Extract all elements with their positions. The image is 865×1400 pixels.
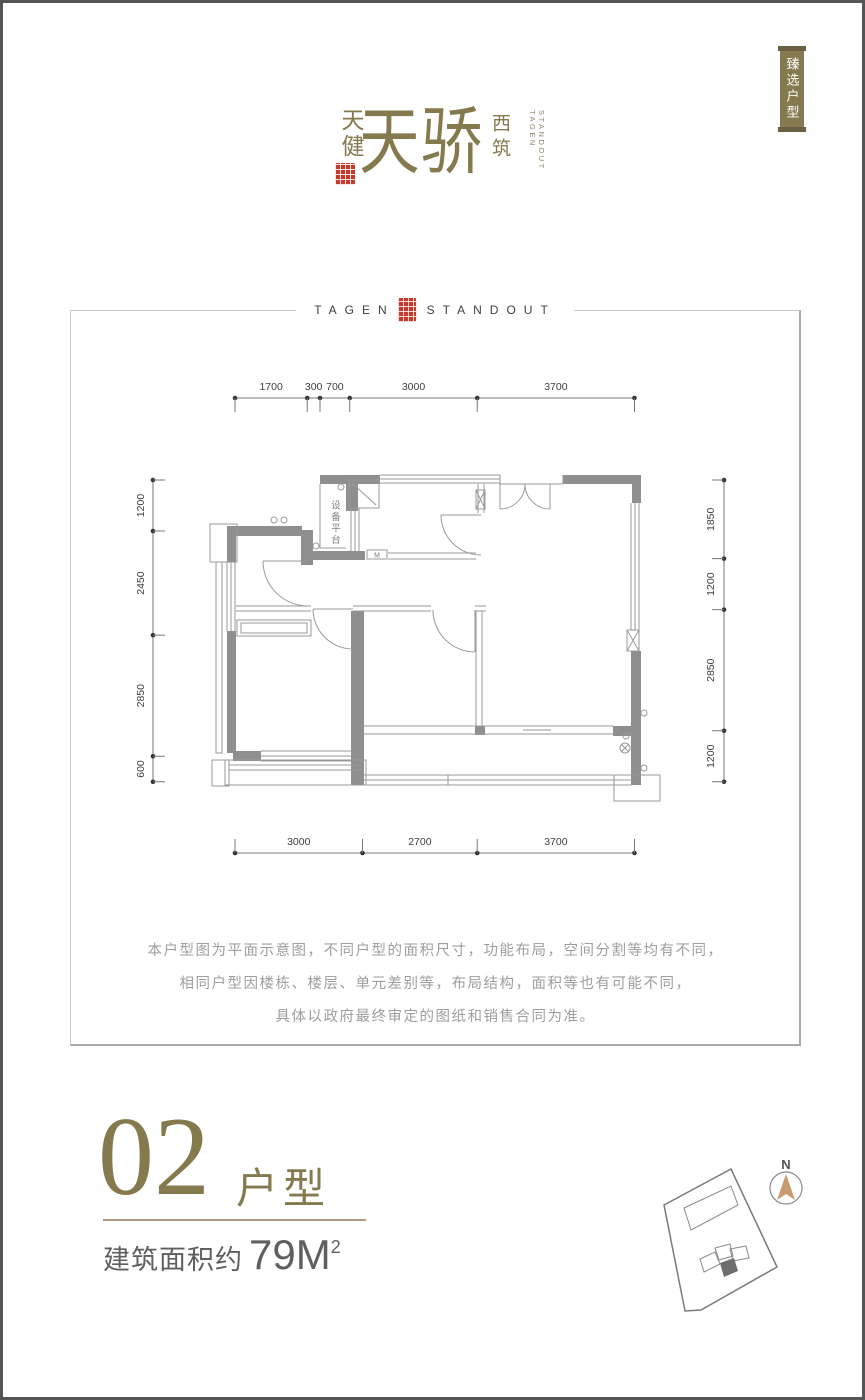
- flyer-page: 天健 天骄 西筑 TAGEN STANDOUT 臻选户型 TAGEN STAND…: [0, 0, 865, 1400]
- svg-text:300: 300: [305, 381, 323, 393]
- site-plan: N: [643, 1141, 803, 1326]
- brand-suffix-name: 西筑: [486, 113, 513, 163]
- svg-text:2700: 2700: [408, 836, 432, 848]
- disclaimer-text: 本户型图为平面示意图，不同户型的面积尺寸，功能布局，空间分割等均有不同， 相同户…: [70, 935, 801, 1034]
- svg-text:1200: 1200: [705, 744, 717, 768]
- svg-text:3700: 3700: [544, 381, 568, 393]
- frame-title-right: STANDOUT: [427, 303, 556, 317]
- unit-area-label: 建筑面积约: [103, 1238, 243, 1277]
- brand-logo: 天健 天骄 西筑 TAGEN STANDOUT: [3, 3, 862, 243]
- north-label: N: [781, 1157, 790, 1172]
- frame-title-left: TAGEN: [314, 303, 394, 317]
- unit-number: 02: [98, 1101, 210, 1213]
- unit-area: 建筑面积约 79M 2: [103, 1231, 341, 1279]
- svg-text:1200: 1200: [135, 494, 147, 518]
- unit-area-superscript: 2: [331, 1237, 341, 1258]
- site-boundary: [664, 1169, 777, 1311]
- select-unit-banner-text: 臻选户型: [783, 57, 802, 121]
- disclaimer-line-1: 本户型图为平面示意图，不同户型的面积尺寸，功能布局，空间分割等均有不同，: [70, 935, 801, 968]
- svg-text:3700: 3700: [544, 836, 568, 848]
- floorplan-windows-and-lines: [210, 475, 660, 801]
- floorplan-doors: [263, 484, 550, 652]
- unit-area-value: 79M: [249, 1231, 331, 1279]
- floorplan-walls: [227, 475, 641, 785]
- svg-text:600: 600: [135, 760, 147, 778]
- frame-title: TAGEN STANDOUT: [296, 298, 574, 322]
- svg-text:2450: 2450: [135, 571, 147, 595]
- unit-type-label: 户型: [236, 1155, 330, 1216]
- svg-text:700: 700: [326, 381, 344, 393]
- brand-en-line1: TAGEN: [528, 110, 537, 148]
- disclaimer-line-2: 相同户型因楼栋、楼层、单元差别等，布局结构，面积等也有可能不同，: [70, 968, 801, 1001]
- brand-main-name: 天骄: [359, 103, 484, 184]
- svg-text:2850: 2850: [135, 684, 147, 708]
- svg-text:3000: 3000: [402, 381, 426, 393]
- door-marker-label: M: [374, 553, 380, 560]
- brand-seal-icon: [335, 163, 355, 185]
- svg-text:1200: 1200: [705, 572, 717, 596]
- select-unit-banner: 臻选户型: [780, 49, 804, 129]
- brand-en-line2: STANDOUT: [537, 110, 546, 171]
- disclaimer-line-3: 具体以政府最终审定的图纸和销售合同为准。: [70, 1001, 801, 1034]
- frame-title-seal-icon: [399, 298, 417, 322]
- floorplan-drawing: M 17003007003000370030002700370012002450…: [133, 363, 733, 873]
- svg-text:2850: 2850: [705, 658, 717, 682]
- svg-text:3000: 3000: [287, 836, 311, 848]
- equipment-platform-label: 设备平台: [327, 500, 341, 558]
- unit-divider: [103, 1219, 366, 1221]
- svg-text:1850: 1850: [705, 507, 717, 531]
- svg-text:1700: 1700: [259, 381, 283, 393]
